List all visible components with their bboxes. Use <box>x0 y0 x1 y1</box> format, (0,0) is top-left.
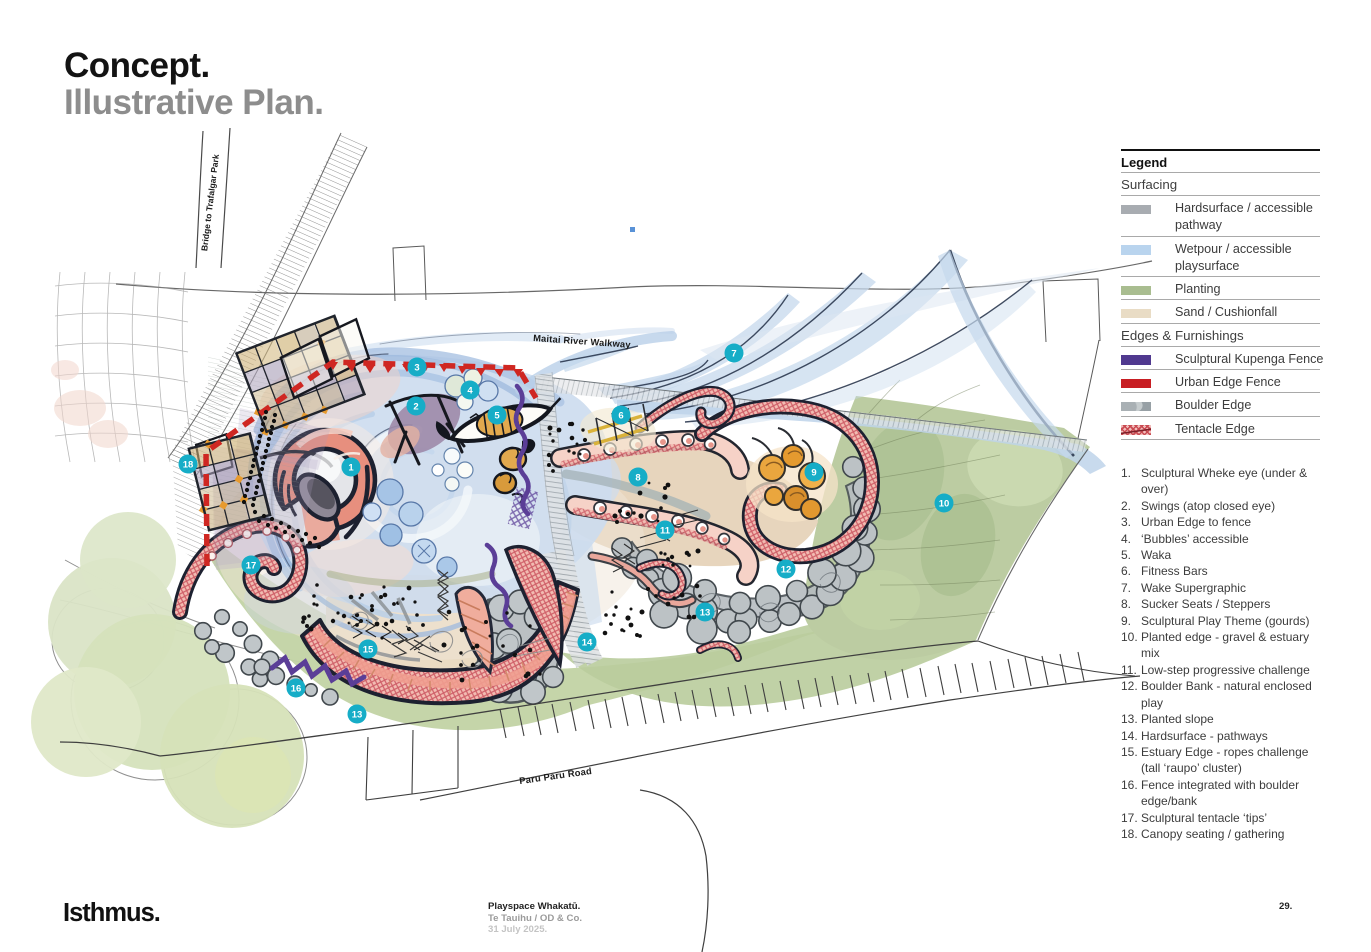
svg-text:6: 6 <box>618 411 623 422</box>
svg-text:Bridge to Trafalgar Park: Bridge to Trafalgar Park <box>199 153 221 251</box>
svg-text:8: 8 <box>635 473 640 484</box>
svg-text:14: 14 <box>582 638 593 649</box>
svg-text:Maitai River Walkway: Maitai River Walkway <box>533 333 632 350</box>
svg-text:10: 10 <box>939 499 950 510</box>
svg-text:Paru Paru Road: Paru Paru Road <box>519 765 593 786</box>
svg-text:5: 5 <box>494 411 500 422</box>
svg-text:15: 15 <box>363 645 374 656</box>
svg-text:17: 17 <box>246 561 257 572</box>
svg-text:12: 12 <box>781 565 792 576</box>
svg-text:2: 2 <box>413 402 418 413</box>
svg-text:3: 3 <box>414 363 419 374</box>
svg-text:11: 11 <box>660 526 671 537</box>
svg-text:13: 13 <box>352 710 363 721</box>
svg-text:7: 7 <box>731 349 736 360</box>
svg-text:18: 18 <box>183 460 194 471</box>
svg-text:16: 16 <box>291 684 302 695</box>
svg-text:1: 1 <box>348 463 354 474</box>
svg-text:9: 9 <box>811 468 816 479</box>
svg-text:13: 13 <box>700 608 711 619</box>
svg-text:4: 4 <box>467 386 473 397</box>
